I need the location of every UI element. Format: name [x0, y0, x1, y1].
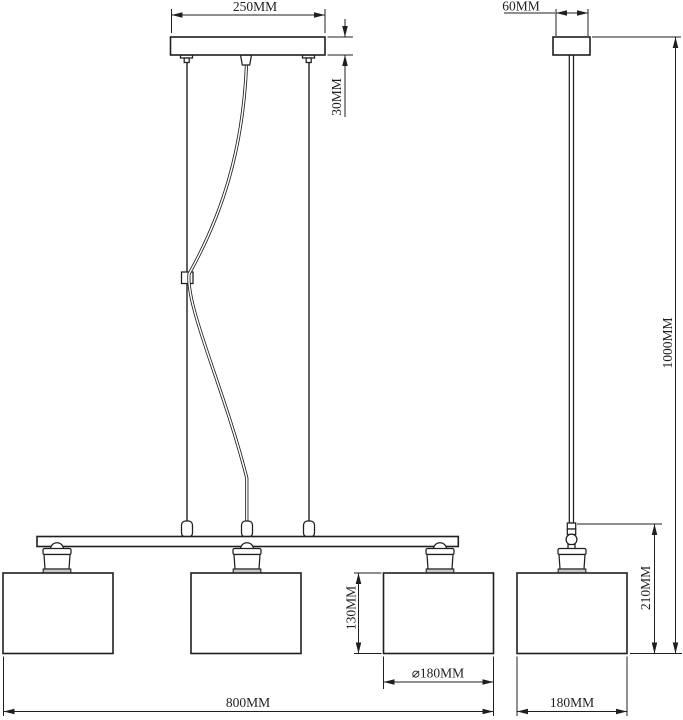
side-view: [517, 37, 627, 654]
dim-canopy-height-30: 30MM: [328, 19, 354, 117]
lamp-socket-2: [233, 543, 261, 574]
rod-connector-left: [182, 521, 193, 537]
lamp-socket-1: [43, 543, 71, 574]
dim-canopy-width-250: 250MM: [172, 0, 326, 33]
dim-shade-height-130: 130MM: [344, 573, 382, 654]
canopy-fitting-right: [303, 55, 315, 63]
lamp-socket-3: [426, 543, 454, 574]
dim-label-60mm: 60MM: [502, 0, 540, 14]
dim-label-130mm: 130MM: [344, 586, 359, 630]
rod-connector-center: [242, 521, 253, 537]
dim-label-180mm: 180MM: [550, 695, 594, 710]
ceiling-canopy-side: [553, 37, 590, 55]
canopy-fitting-left: [181, 55, 193, 63]
lampshade-3: [384, 573, 494, 654]
lamp-socket-side: [558, 549, 586, 574]
swivel-joint: [566, 523, 577, 549]
dim-label-800mm: 800MM: [226, 695, 270, 710]
rod-connector-right: [304, 521, 315, 537]
dim-side-canopy-width-60: 60MM: [502, 0, 588, 36]
lampshade-side: [517, 573, 627, 654]
front-view: [3, 37, 494, 654]
lampshade-2: [191, 573, 301, 654]
dim-label-diameter-180mm: ⌀180MM: [412, 666, 464, 681]
drawing-canvas: 250MM 30MM 60MM 1000MM 210MM: [0, 0, 683, 720]
dim-label-30mm: 30MM: [329, 78, 344, 116]
canopy-fitting-center: [241, 55, 252, 65]
ceiling-canopy: [171, 37, 326, 55]
lamp-technical-drawing: 250MM 30MM 60MM 1000MM 210MM: [0, 0, 683, 720]
dim-drop-height-1000: 1000MM: [592, 37, 682, 654]
dim-label-250mm: 250MM: [233, 0, 277, 14]
dim-shade-diameter-180: ⌀180MM: [384, 657, 494, 690]
dim-label-1000mm: 1000MM: [660, 317, 675, 368]
lampshade-1: [3, 573, 113, 654]
suspension-rod-side: [569, 55, 573, 523]
power-cord: [189, 65, 247, 522]
dim-label-210mm: 210MM: [638, 566, 653, 610]
dim-side-shade-width-180: 180MM: [517, 657, 627, 717]
